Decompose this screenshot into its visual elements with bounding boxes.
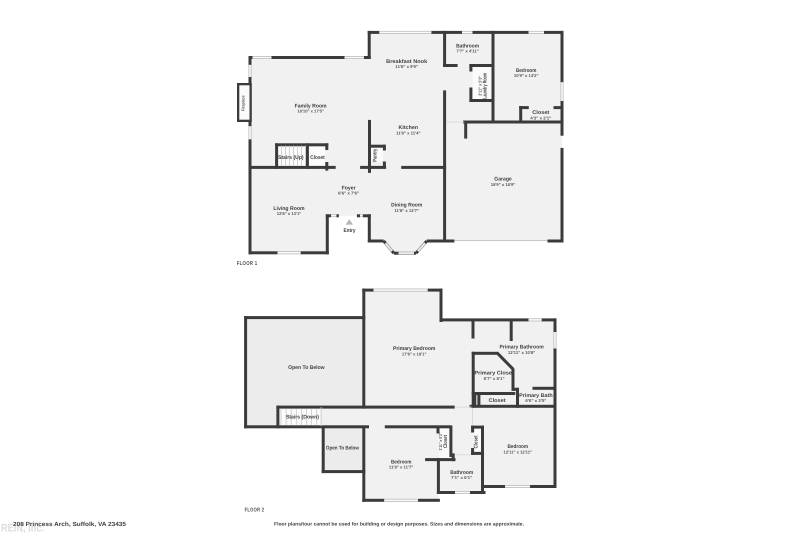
- svg-text:4'3" x 2'1": 4'3" x 2'1": [530, 116, 551, 121]
- svg-text:208 Princess Arch, Suffolk, VA: 208 Princess Arch, Suffolk, VA 23435: [13, 521, 127, 528]
- svg-text:FLOOR 1: FLOOR 1: [237, 261, 258, 267]
- svg-text:6'6" x 7'6": 6'6" x 7'6": [338, 191, 359, 196]
- svg-text:11'8" x 11'4": 11'8" x 11'4": [396, 130, 421, 135]
- svg-text:Open To Below: Open To Below: [288, 365, 325, 371]
- svg-text:Fireplace: Fireplace: [240, 95, 245, 112]
- svg-text:2'11" x 5'3": 2'11" x 5'3": [477, 76, 482, 96]
- svg-text:12'8" x 13'1": 12'8" x 13'1": [277, 211, 302, 216]
- svg-text:Closet: Closet: [489, 398, 506, 404]
- svg-text:Open To Below: Open To Below: [326, 446, 360, 452]
- svg-text:Stairs (Up): Stairs (Up): [278, 155, 304, 161]
- svg-text:FLOOR 2: FLOOR 2: [245, 508, 265, 514]
- svg-text:11'8" x 12'7": 11'8" x 12'7": [394, 208, 419, 213]
- svg-text:11'8" x 9'9": 11'8" x 9'9": [395, 64, 418, 69]
- svg-text:11'8" x 11'7": 11'8" x 11'7": [389, 465, 414, 470]
- svg-text:18'9" x 18'9": 18'9" x 18'9": [491, 182, 516, 187]
- svg-text:Laundry Room: Laundry Room: [482, 73, 488, 99]
- svg-text:Closet: Closet: [310, 155, 325, 161]
- svg-text:1'11" x 5'2": 1'11" x 5'2": [438, 432, 443, 450]
- svg-text:17'6" x 18'1": 17'6" x 18'1": [402, 351, 427, 356]
- svg-text:7'7" x 4'11": 7'7" x 4'11": [456, 49, 479, 54]
- svg-text:12'11" x 10'8": 12'11" x 10'8": [508, 350, 536, 355]
- svg-text:18'10" x 17'5": 18'10" x 17'5": [297, 109, 324, 114]
- svg-text:7'1" x 6'1": 7'1" x 6'1": [451, 475, 472, 480]
- svg-text:6'7" x 8'1": 6'7" x 8'1": [484, 376, 505, 381]
- svg-text:Floor plans/tour cannot be use: Floor plans/tour cannot be used for buil…: [274, 521, 525, 527]
- svg-text:Entry: Entry: [344, 228, 356, 234]
- svg-text:Pantry: Pantry: [372, 149, 378, 162]
- svg-text:6'6" x 2'5": 6'6" x 2'5": [525, 398, 546, 403]
- svg-text:Closet: Closet: [443, 435, 449, 448]
- svg-text:10'9" x 14'2": 10'9" x 14'2": [514, 73, 539, 78]
- svg-text:Stairs (Down): Stairs (Down): [286, 415, 319, 421]
- svg-text:Closet: Closet: [474, 435, 480, 448]
- svg-text:12'11" x 12'11": 12'11" x 12'11": [504, 449, 533, 454]
